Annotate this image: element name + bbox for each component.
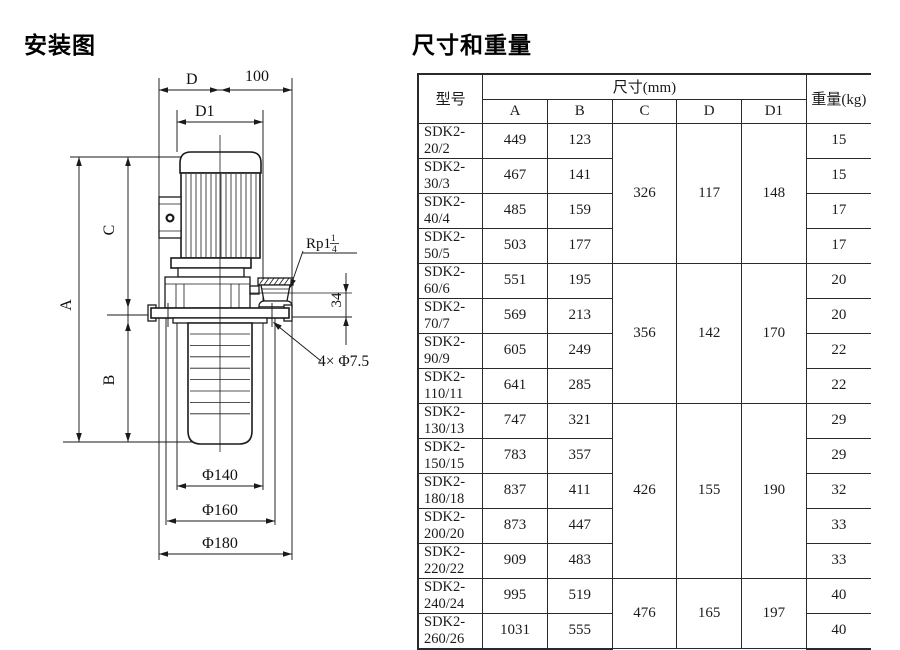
table-cell: SDK2-200/20 <box>418 508 483 543</box>
table-cell: 148 <box>742 123 807 263</box>
dim-label-34: 34 <box>329 292 345 308</box>
table-cell: 20 <box>806 263 871 298</box>
port-thread-fraction-num: 1 <box>331 234 336 244</box>
table-cell: 426 <box>612 403 677 578</box>
table-cell: 15 <box>806 158 871 193</box>
table-cell: 197 <box>742 578 807 649</box>
junction-box-gland <box>167 215 174 222</box>
table-cell: 117 <box>677 123 742 263</box>
table-row: SDK2-130/1374732142615519029 <box>418 403 871 438</box>
table-cell: SDK2-90/9 <box>418 333 483 368</box>
table-cell: SDK2-180/18 <box>418 473 483 508</box>
pump-head <box>165 277 250 308</box>
installation-diagram-title: 安装图 <box>24 26 96 60</box>
table-cell: 17 <box>806 193 871 228</box>
table-cell: 909 <box>483 543 548 578</box>
table-cell: 447 <box>547 508 612 543</box>
table-row: SDK2-240/2499551947616519740 <box>418 578 871 613</box>
dim-label-c: C <box>101 225 118 236</box>
column-header-c: C <box>612 99 677 123</box>
column-header-b: B <box>547 99 612 123</box>
table-cell: SDK2-130/13 <box>418 403 483 438</box>
bolt-holes-note: 4× Φ7.5 <box>318 353 369 370</box>
dim-label-b: B <box>101 375 118 386</box>
table-row: SDK2-60/655119535614217020 <box>418 263 871 298</box>
table-cell: SDK2-220/22 <box>418 543 483 578</box>
table-cell: 357 <box>547 438 612 473</box>
table-cell: 747 <box>483 403 548 438</box>
table-cell: 177 <box>547 228 612 263</box>
table-cell: 195 <box>547 263 612 298</box>
table-cell: 476 <box>612 578 677 649</box>
column-header-model: 型号 <box>418 74 483 123</box>
table-cell: 321 <box>547 403 612 438</box>
table-cell: 15 <box>806 123 871 158</box>
motor-cap <box>180 152 261 173</box>
table-cell: SDK2-70/7 <box>418 298 483 333</box>
table-cell: SDK2-240/24 <box>418 578 483 613</box>
pump-body <box>148 152 293 444</box>
table-cell: 356 <box>612 263 677 403</box>
table-cell: 569 <box>483 298 548 333</box>
table-cell: 873 <box>483 508 548 543</box>
motor-foot <box>171 258 251 268</box>
column-header-d1: D1 <box>742 99 807 123</box>
table-cell: 40 <box>806 613 871 649</box>
table-cell: 326 <box>612 123 677 263</box>
table-cell: SDK2-20/2 <box>418 123 483 158</box>
table-cell: 20 <box>806 298 871 333</box>
table-cell: 17 <box>806 228 871 263</box>
dim-label-100: 100 <box>245 68 269 85</box>
table-cell: SDK2-260/26 <box>418 613 483 649</box>
table-cell: 285 <box>547 368 612 403</box>
table-cell: SDK2-30/3 <box>418 158 483 193</box>
pump-neck <box>178 268 244 277</box>
table-cell: 519 <box>547 578 612 613</box>
table-cell: 33 <box>806 543 871 578</box>
table-cell: 503 <box>483 228 548 263</box>
table-cell: 1031 <box>483 613 548 649</box>
installation-diagram: D 100 D1 A C B 34 Rp1 1 4 4× Φ7.5 Φ140 Φ… <box>0 60 400 582</box>
table-cell: 159 <box>547 193 612 228</box>
table-cell: 411 <box>547 473 612 508</box>
table-cell: 551 <box>483 263 548 298</box>
column-header-weight: 重量(kg) <box>806 74 871 123</box>
dim-label-d: D <box>186 71 198 88</box>
column-header-a: A <box>483 99 548 123</box>
table-cell: 22 <box>806 368 871 403</box>
table-cell: 40 <box>806 578 871 613</box>
dimensions-weight-title: 尺寸和重量 <box>412 26 532 60</box>
table-cell: SDK2-60/6 <box>418 263 483 298</box>
table-cell: 32 <box>806 473 871 508</box>
table-cell: 190 <box>742 403 807 578</box>
table-cell: 170 <box>742 263 807 403</box>
dim-label-phi140: Φ140 <box>202 467 238 484</box>
column-header-size-group: 尺寸(mm) <box>483 74 807 99</box>
motor-fins <box>181 173 260 258</box>
dim-label-phi180: Φ180 <box>202 535 238 552</box>
table-row: SDK2-20/244912332611714815 <box>418 123 871 158</box>
table-cell: 165 <box>677 578 742 649</box>
table-cell: 449 <box>483 123 548 158</box>
table-cell: SDK2-40/4 <box>418 193 483 228</box>
column-header-d: D <box>677 99 742 123</box>
port-thread-label: Rp1 <box>306 236 331 252</box>
dim-label-a: A <box>58 299 75 311</box>
table-cell: SDK2-150/15 <box>418 438 483 473</box>
table-cell: 141 <box>547 158 612 193</box>
table-cell: 555 <box>547 613 612 649</box>
table-cell: 22 <box>806 333 871 368</box>
dim-label-d1: D1 <box>195 103 215 120</box>
table-cell: 142 <box>677 263 742 403</box>
dim-label-phi160: Φ160 <box>202 502 238 519</box>
catalog-page: { "titles": { "diagram": "安装图", "table":… <box>0 0 900 582</box>
table-cell: 249 <box>547 333 612 368</box>
dimensions-table: 型号 尺寸(mm) 重量(kg) A B C D D1 SDK2-20/2449… <box>417 73 871 650</box>
table-cell: 995 <box>483 578 548 613</box>
table-cell: SDK2-110/11 <box>418 368 483 403</box>
table-cell: 155 <box>677 403 742 578</box>
table-cell: 483 <box>547 543 612 578</box>
table-cell: 485 <box>483 193 548 228</box>
table-cell: 605 <box>483 333 548 368</box>
table-cell: SDK2-50/5 <box>418 228 483 263</box>
table-cell: 29 <box>806 403 871 438</box>
table-cell: 33 <box>806 508 871 543</box>
table-cell: 467 <box>483 158 548 193</box>
table-cell: 123 <box>547 123 612 158</box>
table-cell: 783 <box>483 438 548 473</box>
table-cell: 213 <box>547 298 612 333</box>
table-cell: 837 <box>483 473 548 508</box>
port-thread-fraction-den: 4 <box>332 245 337 255</box>
table-cell: 29 <box>806 438 871 473</box>
table-cell: 641 <box>483 368 548 403</box>
